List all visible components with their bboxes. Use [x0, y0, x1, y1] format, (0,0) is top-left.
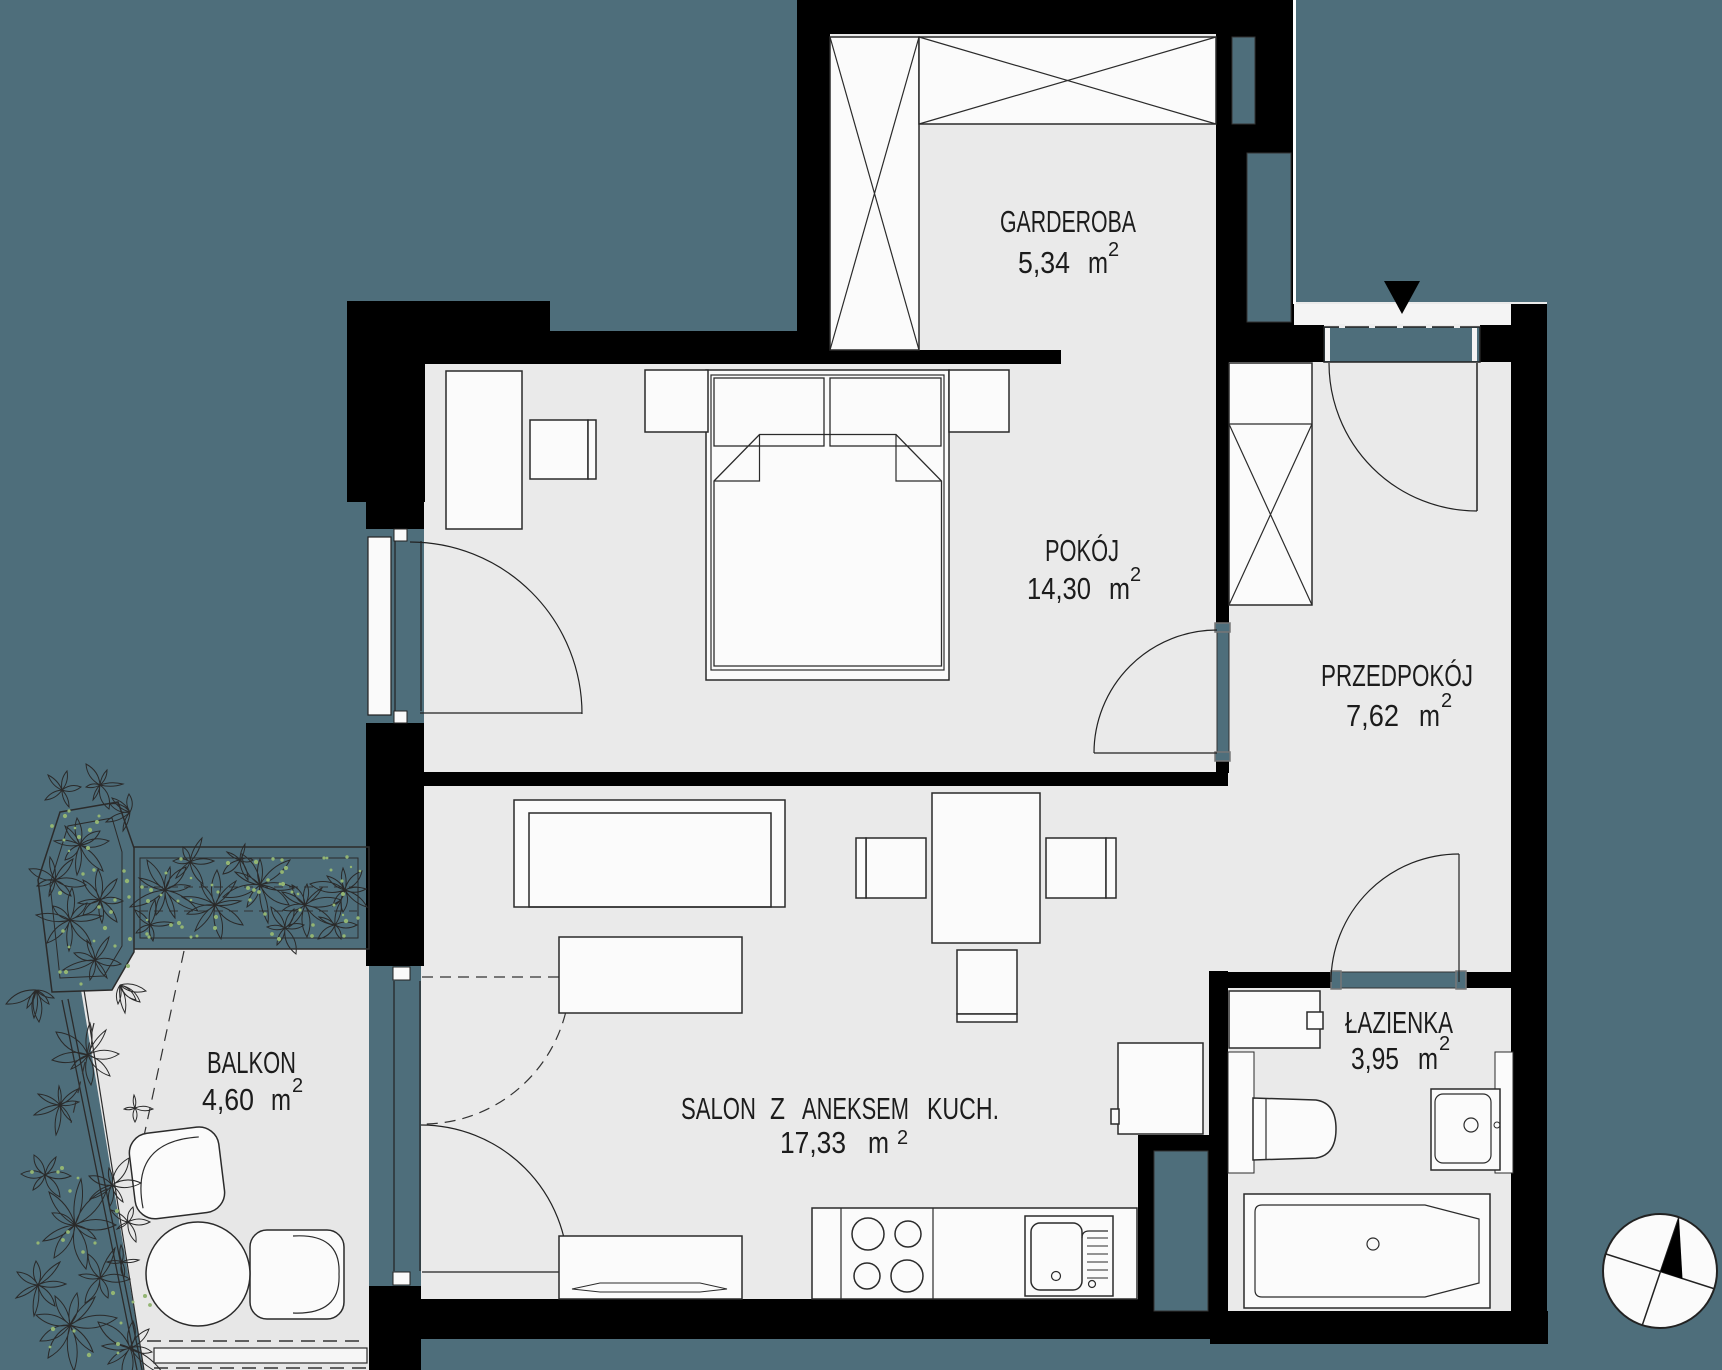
svg-text:SALON: SALON — [681, 1091, 756, 1126]
svg-text:2: 2 — [1439, 1033, 1450, 1055]
svg-text:m: m — [1419, 698, 1440, 733]
svg-text:m: m — [1088, 245, 1108, 280]
svg-text:17,33: 17,33 — [780, 1125, 846, 1160]
svg-text:GARDEROBA: GARDEROBA — [1000, 204, 1136, 239]
svg-text:ANEKSEM: ANEKSEM — [802, 1091, 909, 1126]
svg-text:2: 2 — [897, 1127, 908, 1149]
svg-text:m: m — [868, 1125, 889, 1160]
svg-text:7,62: 7,62 — [1346, 698, 1399, 733]
svg-text:KUCH.: KUCH. — [927, 1091, 999, 1126]
svg-text:3,95: 3,95 — [1351, 1041, 1399, 1076]
svg-text:14,30: 14,30 — [1027, 571, 1091, 606]
svg-text:POKÓJ: POKÓJ — [1045, 533, 1119, 568]
svg-text:BALKON: BALKON — [207, 1045, 296, 1080]
svg-text:Z: Z — [770, 1091, 785, 1126]
svg-text:2: 2 — [1441, 690, 1452, 712]
svg-text:2: 2 — [1130, 564, 1141, 586]
svg-text:ŁAZIENKA: ŁAZIENKA — [1345, 1005, 1453, 1040]
svg-text:2: 2 — [1108, 239, 1119, 261]
svg-text:m: m — [1418, 1041, 1438, 1076]
svg-text:m: m — [1109, 571, 1130, 606]
svg-text:PRZEDPOKÓJ: PRZEDPOKÓJ — [1321, 658, 1473, 693]
svg-text:5,34: 5,34 — [1018, 245, 1070, 280]
svg-text:m: m — [271, 1082, 291, 1117]
svg-text:2: 2 — [292, 1075, 303, 1097]
svg-text:4,60: 4,60 — [202, 1082, 254, 1117]
